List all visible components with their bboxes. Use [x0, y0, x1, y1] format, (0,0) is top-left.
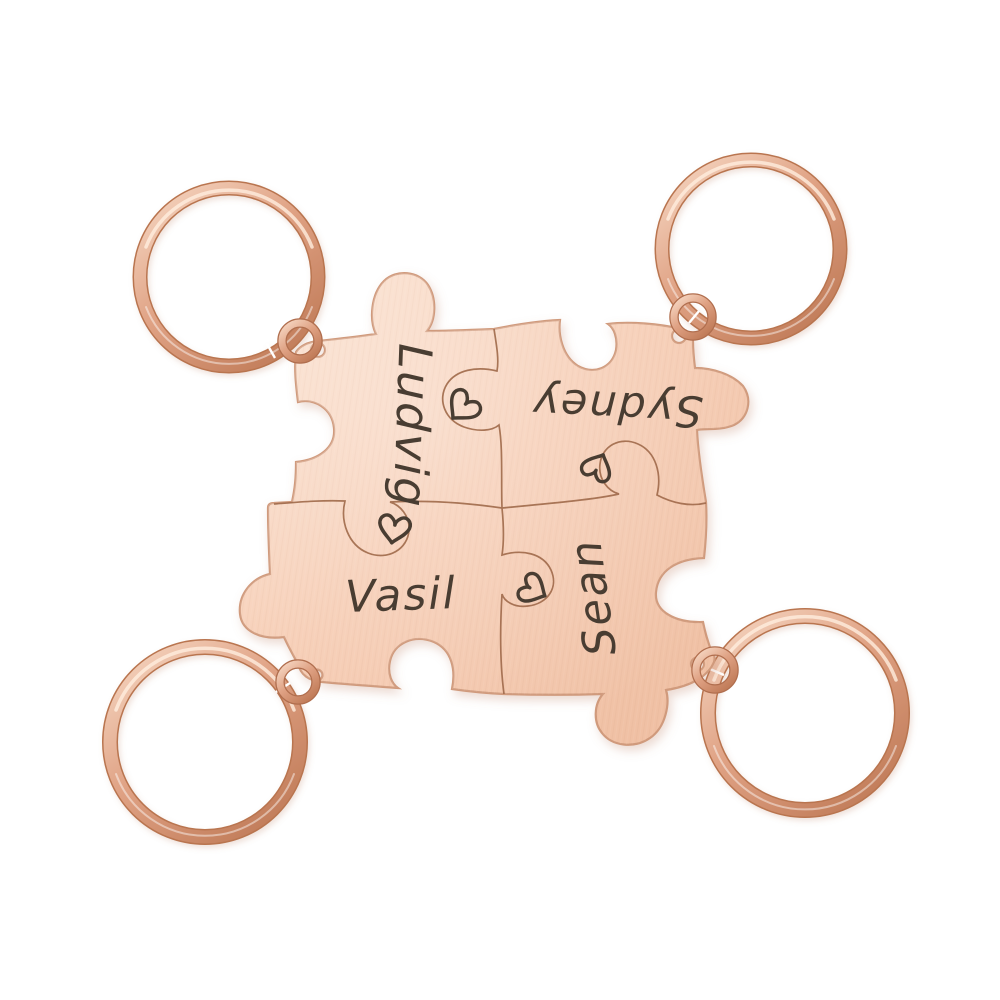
puzzle-piece-top-right: Sydney — [530, 377, 704, 436]
engraved-name-sydney: Sydney — [530, 377, 704, 436]
keyring-top-left — [140, 188, 318, 366]
product-photo: Ludvig Sydney Vasil Sean — [0, 0, 1000, 1000]
engraved-name-ludvig: Ludvig — [383, 343, 443, 510]
puzzle-piece-top-left: Ludvig — [383, 343, 443, 510]
puzzle-piece-bottom-left: Vasil — [344, 568, 457, 623]
puzzle-keychain-photo: Ludvig Sydney Vasil Sean — [0, 0, 1000, 1000]
engraved-name-vasil: Vasil — [344, 568, 457, 623]
keyring-top-right — [662, 160, 840, 338]
keyring-bottom-left — [110, 647, 300, 837]
keyring-bottom-right — [708, 616, 902, 810]
